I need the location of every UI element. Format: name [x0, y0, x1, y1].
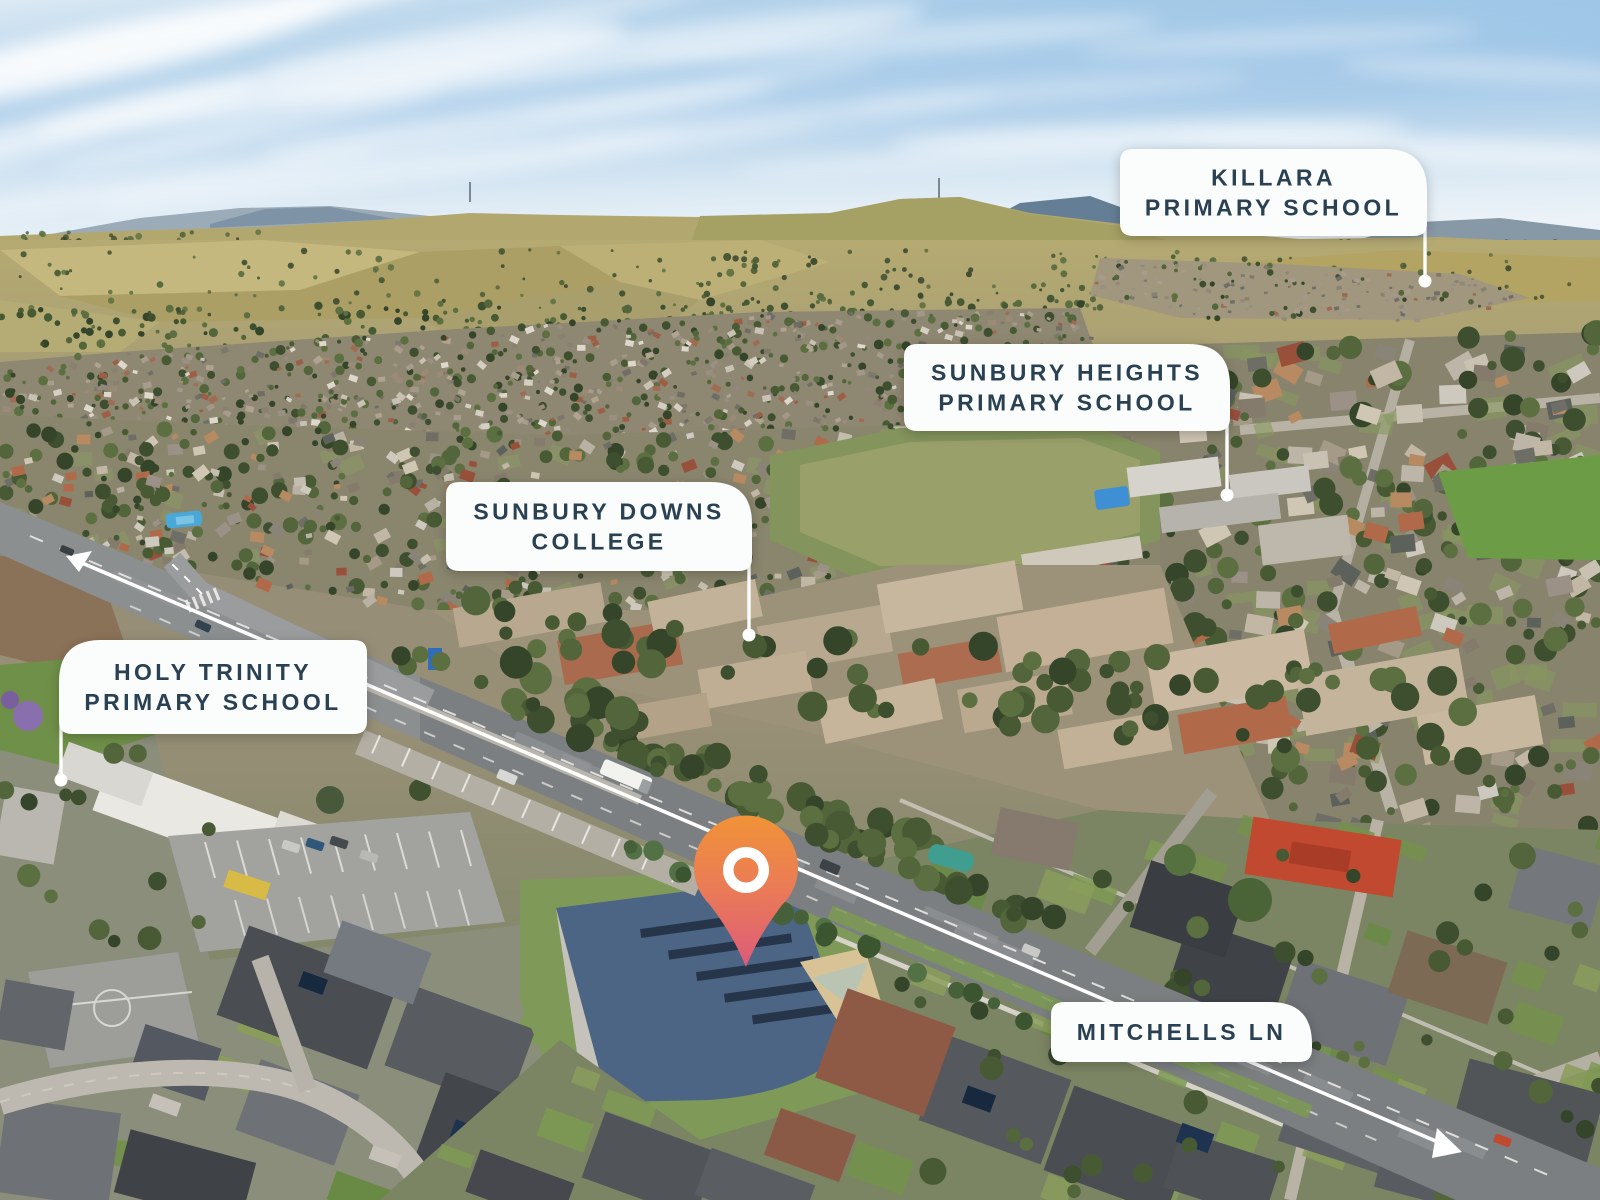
svg-text:KILLARA: KILLARA: [1211, 165, 1336, 191]
svg-text:PRIMARY SCHOOL: PRIMARY SCHOOL: [1145, 195, 1402, 221]
svg-text:SUNBURY HEIGHTS: SUNBURY HEIGHTS: [931, 360, 1203, 386]
svg-text:PRIMARY SCHOOL: PRIMARY SCHOOL: [938, 390, 1195, 416]
svg-text:COLLEGE: COLLEGE: [532, 529, 667, 555]
svg-text:PRIMARY SCHOOL: PRIMARY SCHOOL: [84, 689, 341, 715]
svg-text:SUNBURY DOWNS: SUNBURY DOWNS: [473, 499, 724, 525]
svg-text:HOLY TRINITY: HOLY TRINITY: [114, 659, 312, 685]
svg-text:MITCHELLS LN: MITCHELLS LN: [1077, 1019, 1286, 1045]
